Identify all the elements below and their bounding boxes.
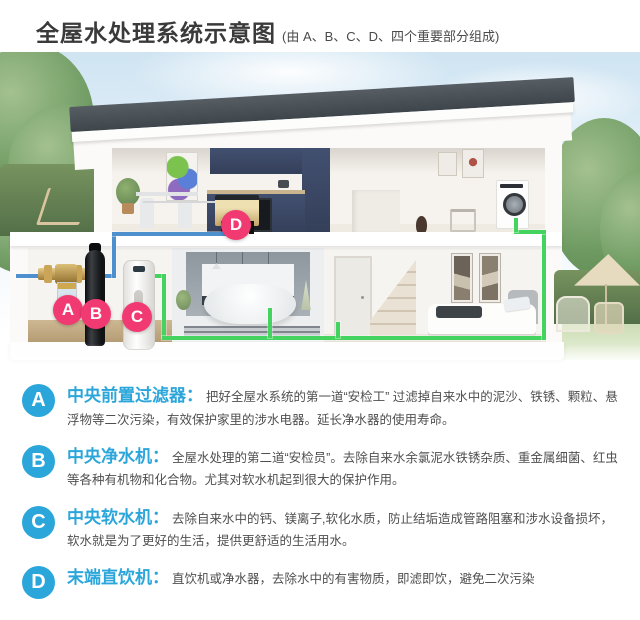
- garden-chair-icon: [556, 296, 590, 332]
- pre-filter-nuts: [44, 265, 52, 283]
- legend-title-d: 末端直饮机：: [67, 568, 169, 587]
- fade: [0, 344, 640, 372]
- legend-title-a: 中央前置过滤器：: [67, 386, 203, 405]
- plant-pot: [122, 203, 134, 214]
- legend-item-d: D 末端直饮机：直饮机或净水器，去除水中的有害物质，即滤即饮，避免二次污染: [22, 564, 620, 599]
- header: 全屋水处理系统示意图(由 A、B、C、D、四个重要部分组成): [0, 0, 640, 52]
- diagram-badge-b: B: [81, 299, 111, 329]
- bathtub-icon: [204, 284, 296, 324]
- soft-water-pipe: [162, 274, 166, 338]
- legend-title-b: 中央净水机：: [67, 447, 169, 466]
- bed-blanket: [436, 306, 482, 318]
- diagram-badge-a: A: [53, 295, 83, 325]
- cold-water-pipe: [112, 232, 116, 278]
- picture-frame-icon: [452, 254, 472, 302]
- door-knob: [361, 296, 364, 299]
- plant-icon: [176, 290, 191, 310]
- picture-frame-icon: [438, 152, 457, 176]
- pendant-lamp-icon: [216, 252, 217, 264]
- page-subtitle: (由 A、B、C、D、四个重要部分组成): [282, 29, 499, 44]
- legend-item-b: B 中央净水机：全屋水处理的第二道“安检员”。去除自来水余氯泥水铁锈杂质、重金属…: [22, 443, 620, 491]
- soft-water-pipe: [162, 336, 546, 340]
- legend-text-b: 中央净水机：全屋水处理的第二道“安检员”。去除自来水余氯泥水铁锈杂质、重金属细菌…: [67, 443, 620, 491]
- picture-frame-icon: [480, 254, 500, 302]
- washing-machine-door: [503, 193, 526, 216]
- diagram-badge-d: D: [221, 210, 251, 240]
- page-title: 全屋水处理系统示意图: [36, 20, 276, 46]
- kitchen-upper-cabinets: [210, 148, 302, 174]
- legend-text-c: 中央软水机：去除自来水中的钙、镁离子,软化水质，防止结垢造成管路阻塞和涉水设备损…: [67, 504, 620, 552]
- dining-table-icon: [136, 192, 198, 196]
- soft-water-pipe: [514, 230, 546, 234]
- softener-display: [133, 266, 145, 272]
- half-wall: [352, 190, 400, 234]
- purifier-tank-icon: [85, 250, 105, 346]
- diagram-badge-c: C: [122, 302, 152, 332]
- side-table-icon: [450, 209, 476, 232]
- legend-item-a: A 中央前置过滤器：把好全屋水系统的第一道“安检工” 过滤掉自来水中的泥沙、铁锈…: [22, 382, 620, 430]
- legend-badge-a: A: [22, 384, 55, 417]
- kettle-icon: [278, 180, 289, 188]
- legend: A 中央前置过滤器：把好全屋水系统的第一道“安检工” 过滤掉自来水中的泥沙、铁锈…: [0, 372, 640, 599]
- soft-water-pipe: [542, 230, 546, 340]
- chair-icon: [178, 198, 192, 228]
- legend-text-d: 末端直饮机：直饮机或净水器，去除水中的有害物质，即滤即饮，避免二次污染: [67, 564, 620, 592]
- legend-title-c: 中央软水机：: [67, 508, 169, 527]
- pre-filter-head: [55, 264, 77, 284]
- kitchen-tall-cabinet: [302, 148, 330, 234]
- page: 全屋水处理系统示意图(由 A、B、C、D、四个重要部分组成): [0, 0, 640, 620]
- washing-machine-panel: [500, 184, 523, 188]
- legend-badge-d: D: [22, 566, 55, 599]
- legend-badge-c: C: [22, 506, 55, 539]
- garden-table-icon: [594, 302, 624, 334]
- legend-item-c: C 中央软水机：去除自来水中的钙、镁离子,软化水质，防止结垢造成管路阻塞和涉水设…: [22, 504, 620, 552]
- soft-water-pipe: [514, 218, 518, 232]
- kitchen-counter: [207, 190, 305, 194]
- chair-icon: [140, 198, 154, 228]
- legend-desc-d: 直饮机或净水器，去除水中的有害物质，即滤即饮，避免二次污染: [172, 572, 535, 586]
- soft-water-pipe: [268, 308, 272, 338]
- cold-water-pipe: [112, 232, 234, 236]
- picture-frame-icon: [462, 149, 484, 178]
- house-illustration: A B C D: [0, 52, 640, 372]
- legend-badge-b: B: [22, 445, 55, 478]
- legend-text-a: 中央前置过滤器：把好全屋水系统的第一道“安检工” 过滤掉自来水中的泥沙、铁锈、颗…: [67, 382, 620, 430]
- soft-water-pipe: [336, 322, 340, 338]
